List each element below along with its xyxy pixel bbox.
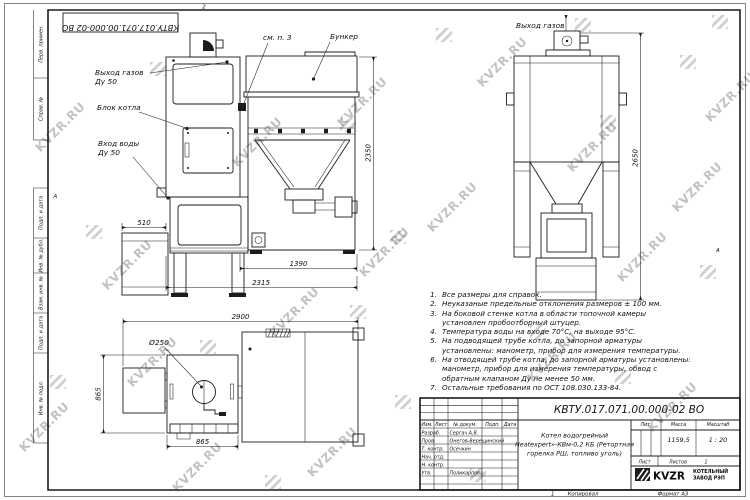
callout-gas-outlet-right: Выход газов <box>516 21 564 30</box>
note-number: 2. <box>424 299 437 308</box>
burner-flange <box>285 189 323 200</box>
callout-see-note-3: см. п. 3 <box>263 33 292 42</box>
footer-format-label: Формат А3 <box>658 492 689 498</box>
zone-marker-left: А <box>53 194 58 200</box>
titleblock-name-utv: Поликарпова <box>450 470 484 476</box>
titleblock-mass-label: Масса <box>671 422 686 428</box>
titleblock-name-tkontr: Осечкин <box>450 446 471 452</box>
titleblock-title-line1: Котел водогрейный <box>541 432 608 440</box>
dim-label-2900: 2900 <box>232 313 250 321</box>
titleblock-company-line2: ЗАВОД РЭП <box>693 476 725 482</box>
zone-marker-right: А <box>715 248 720 254</box>
title-block: КВТУ.017.071.00.000-02 ВО Изм. Лист № до… <box>420 398 740 490</box>
dimension-510: 510 <box>122 219 166 231</box>
titleblock-name-prov: Онегов-Верещинский <box>450 438 505 444</box>
dim-label-2650: 2650 <box>632 149 640 167</box>
note-text: Температура воды на входе 70°С, на выход… <box>442 327 692 336</box>
titleblock-header-podp: Подп. <box>485 422 500 428</box>
footer-sheet-num: 1 <box>551 492 554 498</box>
margin-label-podp-data-2: Подп. и дата <box>39 316 45 350</box>
titleblock-title-line3: горелка РШ, топливо уголь) <box>527 450 622 458</box>
titleblock-sheet-label: Лист <box>637 460 650 466</box>
dimension-865-horizontal: 865 <box>167 435 238 450</box>
note-number: 3. <box>424 309 437 328</box>
callouts-front-view: см. п. 3 Бункер <box>238 32 358 111</box>
titleblock-role-prov: Пров. <box>422 438 436 444</box>
titleblock-role-nachotd: Нач. отд. <box>422 454 445 460</box>
zone-marker-top: 2 <box>202 5 206 11</box>
titleblock-name-razrab: Сергач А.В. <box>450 430 479 436</box>
callout-boiler-block: Блок котла <box>97 103 141 112</box>
note-item-1: 1.Все размеры для справок. <box>424 290 692 299</box>
titleblock-header-data: Дата <box>503 422 516 428</box>
titleblock-company-line1: КОТЕЛЬНЫЙ <box>693 467 728 475</box>
note-number: 4. <box>424 327 437 336</box>
note-text: На отводящей трубе котла, до запорной ар… <box>442 355 692 383</box>
dim-label-865v: 865 <box>95 387 103 401</box>
note-text: Остальные требования по ОСТ 108.030.133-… <box>442 383 692 392</box>
note-text: Неуказаные предельные отклонения размеро… <box>442 299 692 308</box>
dim-label-2315: 2315 <box>252 279 270 287</box>
dimension-2350: 2350 <box>359 57 377 250</box>
dimension-2315: 2315 <box>166 256 357 291</box>
note-text: Все размеры для справок. <box>442 290 692 299</box>
smoke-damper-icon <box>203 40 214 51</box>
note-item-6: 6.На отводящей трубе котла, до запорной … <box>424 355 692 383</box>
dimension-2650: 2650 <box>580 33 644 300</box>
note-text: На подводящей трубе котла, до запорной а… <box>442 336 692 355</box>
titleblock-title-line2: Heatexpert»-КВм-0,2 КБ (Ретортная <box>515 441 634 449</box>
titleblock-sheets-label: Листов <box>668 460 687 466</box>
sampling-fitting <box>238 103 246 111</box>
note-item-2: 2.Неуказаные предельные отклонения разме… <box>424 299 692 308</box>
note-item-3: 3.На боковой стенке котла в области топо… <box>424 309 692 328</box>
dim-label-865h: 865 <box>196 438 210 446</box>
dimension-1390: 1390 <box>240 254 357 272</box>
titleblock-logo-text: KVZR <box>653 471 685 483</box>
titleblock-doc-number: КВТУ.017.071.00.000-02 ВО <box>554 404 704 416</box>
titleblock-header-izm: Изм. <box>421 422 432 428</box>
dimension-865-vertical: 865 <box>95 355 166 433</box>
margin-label-podp-data-1: Подп. и дата <box>39 196 45 230</box>
dim-label-2350: 2350 <box>365 144 373 162</box>
titleblock-sheets-value: 1 <box>704 460 707 466</box>
margin-label-sprav-no: Справ. № <box>39 97 45 121</box>
callout-bunker: Бункер <box>330 32 358 41</box>
callouts-left-view: Выход газов Ду 50 Блок котла Вход воды Д… <box>94 60 229 199</box>
view-boiler-front <box>244 52 359 254</box>
dim-label-510: 510 <box>137 219 151 227</box>
titleblock-mass-value: 1159,5 <box>667 436 689 444</box>
callout-water-inlet-du50: Ду 50 <box>97 148 120 157</box>
top-stamp-doc-number: КВТУ.017.071.00.000-02 ВО <box>61 23 179 33</box>
dim-label-d250: Ø250 <box>148 338 169 347</box>
titleblock-scale-value: 1 : 20 <box>709 436 727 444</box>
drawing-sheet: KVZR.RU KVZR.RU KVZR.RU KVZR.RU KVZR.RU … <box>0 0 750 500</box>
titleblock-role-nkontr: Н. контр. <box>422 462 445 468</box>
note-item-4: 4.Температура воды на входе 70°С, на вых… <box>424 327 692 336</box>
furnace-plan <box>167 355 238 433</box>
titleblock-header-dokum: № докум. <box>452 422 477 428</box>
callout-gas-outlet: Выход газов <box>95 68 143 77</box>
note-number: 5. <box>424 336 437 355</box>
footer-copied-label: Копировал <box>568 492 599 498</box>
callout-gas-outlet-du50: Ду 50 <box>94 77 117 86</box>
dim-label-1390: 1390 <box>290 260 308 268</box>
margin-label-vzam-inv: Взам. инв. № <box>39 276 45 310</box>
titleblock-role-razrab: Разраб. <box>422 430 441 436</box>
ash-box <box>122 233 168 295</box>
bunker-body <box>246 56 357 92</box>
drawing-canvas: Перв. примен. Справ. № Подп. и дата Инв.… <box>0 0 750 500</box>
note-item-5: 5.На подводящей трубе котла, до запорной… <box>424 336 692 355</box>
note-item-7: 7.Остальные требования по ОСТ 108.030.13… <box>424 383 692 392</box>
titleblock-role-utv: Утв. <box>422 470 432 476</box>
burner-motor <box>335 197 352 217</box>
note-number: 1. <box>424 290 437 299</box>
titleblock-role-tkontr: Т. контр. <box>422 446 444 452</box>
notes-list: 1.Все размеры для справок. 2.Неуказаные … <box>424 290 692 392</box>
titleblock-header-list: Лист <box>434 422 447 428</box>
callout-water-inlet: Вход воды <box>98 139 139 148</box>
note-text: На боковой стенке котла в области топочн… <box>442 309 692 328</box>
margin-label-perv-primen: Перв. примен. <box>39 25 45 63</box>
view-boiler-side-right: Выход газов <box>507 15 627 300</box>
margin-label-inv-podl: Инв. № подл. <box>39 381 45 416</box>
callout-diameter-250: Ø250 <box>148 338 203 389</box>
note-number: 6. <box>424 355 437 383</box>
margin-label-inv-dubl: Инв. № дубл. <box>39 238 45 272</box>
kvzr-logo-icon <box>635 468 651 481</box>
titleblock-lit-label: Лит. <box>639 422 651 428</box>
door-box-plan <box>123 368 165 413</box>
titleblock-scale-label: Масштаб <box>707 422 730 428</box>
note-number: 7. <box>424 383 437 392</box>
